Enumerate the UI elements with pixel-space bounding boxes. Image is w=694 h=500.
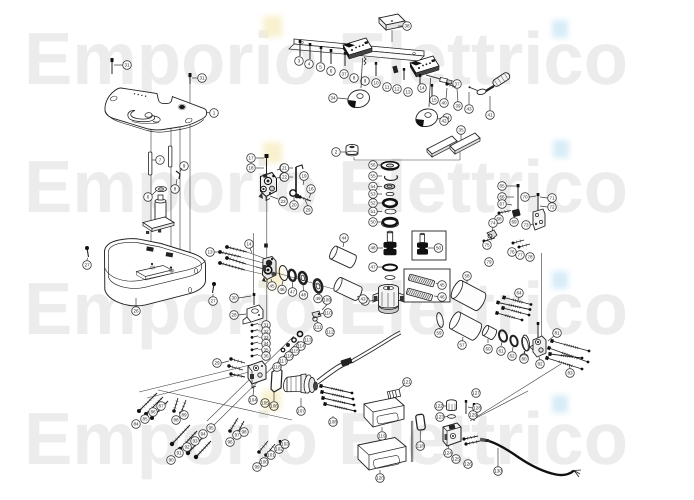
svg-text:80: 80 <box>521 357 527 362</box>
svg-text:103: 103 <box>281 442 289 447</box>
svg-text:96: 96 <box>227 440 233 445</box>
svg-text:74: 74 <box>490 221 496 226</box>
svg-text:71: 71 <box>549 196 555 201</box>
svg-text:55: 55 <box>370 174 376 179</box>
svg-text:76: 76 <box>509 250 515 255</box>
svg-text:86: 86 <box>150 410 156 415</box>
svg-text:125: 125 <box>452 457 460 462</box>
svg-text:61: 61 <box>498 349 504 354</box>
svg-text:75: 75 <box>484 243 490 248</box>
svg-text:22: 22 <box>282 175 288 180</box>
svg-text:128: 128 <box>473 406 481 411</box>
svg-text:45: 45 <box>269 284 275 289</box>
svg-text:9: 9 <box>364 79 367 84</box>
svg-text:79: 79 <box>486 260 492 265</box>
svg-text:48: 48 <box>370 246 376 251</box>
svg-text:106: 106 <box>270 404 278 409</box>
svg-text:130: 130 <box>494 469 502 474</box>
svg-text:95: 95 <box>208 426 214 431</box>
svg-text:38: 38 <box>404 24 410 29</box>
svg-text:34: 34 <box>330 96 336 101</box>
svg-text:45: 45 <box>439 283 445 288</box>
svg-text:108: 108 <box>329 420 337 425</box>
svg-text:58: 58 <box>464 274 470 279</box>
svg-text:62: 62 <box>509 354 515 359</box>
svg-text:5: 5 <box>319 65 322 70</box>
svg-text:17: 17 <box>248 156 254 161</box>
svg-text:73: 73 <box>523 223 529 228</box>
svg-text:123: 123 <box>436 415 444 420</box>
svg-text:2: 2 <box>335 150 338 155</box>
svg-text:7: 7 <box>159 158 162 163</box>
svg-text:87: 87 <box>158 404 164 409</box>
svg-text:49: 49 <box>315 296 321 301</box>
svg-text:50: 50 <box>436 246 442 251</box>
svg-text:39: 39 <box>455 104 461 109</box>
svg-text:120: 120 <box>376 476 384 481</box>
svg-text:6: 6 <box>330 69 333 74</box>
svg-text:28: 28 <box>231 313 237 318</box>
svg-text:85: 85 <box>142 417 148 422</box>
svg-text:23: 23 <box>280 199 286 204</box>
svg-text:111: 111 <box>315 325 322 330</box>
svg-text:4: 4 <box>308 62 311 67</box>
svg-text:27: 27 <box>210 299 216 304</box>
svg-text:109: 109 <box>323 298 331 303</box>
svg-text:117: 117 <box>279 359 287 364</box>
svg-text:44: 44 <box>341 236 347 241</box>
svg-text:40: 40 <box>441 101 447 106</box>
svg-text:6: 6 <box>147 195 150 200</box>
svg-text:118: 118 <box>273 365 281 370</box>
svg-text:36: 36 <box>263 354 269 359</box>
svg-text:127: 127 <box>472 391 480 396</box>
svg-text:99: 99 <box>254 465 260 470</box>
svg-text:82: 82 <box>537 362 543 367</box>
svg-text:122: 122 <box>435 404 443 409</box>
svg-text:57: 57 <box>459 343 465 348</box>
svg-text:66: 66 <box>499 195 505 200</box>
svg-text:52: 52 <box>370 201 376 206</box>
svg-text:13: 13 <box>207 250 213 255</box>
svg-text:98: 98 <box>241 430 247 435</box>
svg-text:8: 8 <box>174 187 177 192</box>
svg-text:68: 68 <box>496 217 502 222</box>
svg-text:51: 51 <box>370 209 376 214</box>
svg-text:129: 129 <box>469 413 477 418</box>
svg-text:56: 56 <box>370 163 376 168</box>
svg-text:119: 119 <box>378 434 386 439</box>
svg-text:92: 92 <box>184 445 190 450</box>
svg-text:16: 16 <box>308 187 314 192</box>
svg-text:93: 93 <box>192 439 198 444</box>
svg-text:60: 60 <box>485 347 491 352</box>
svg-text:43: 43 <box>360 297 366 302</box>
svg-text:15: 15 <box>431 98 437 103</box>
svg-text:90: 90 <box>168 458 174 463</box>
svg-text:65: 65 <box>499 184 505 189</box>
svg-text:67: 67 <box>499 202 505 207</box>
svg-text:31: 31 <box>124 63 130 68</box>
svg-text:46: 46 <box>439 295 445 300</box>
svg-text:31: 31 <box>199 76 205 81</box>
svg-text:47: 47 <box>370 265 376 270</box>
svg-text:84: 84 <box>133 422 139 427</box>
svg-text:48: 48 <box>301 293 307 298</box>
svg-text:104: 104 <box>249 398 257 403</box>
svg-text:107: 107 <box>297 409 305 414</box>
svg-text:47: 47 <box>290 290 296 295</box>
svg-text:29: 29 <box>305 208 311 213</box>
svg-text:81: 81 <box>554 331 560 336</box>
svg-text:64: 64 <box>516 291 522 296</box>
svg-text:46: 46 <box>279 287 285 292</box>
svg-text:91: 91 <box>176 451 182 456</box>
svg-text:78: 78 <box>527 255 533 260</box>
svg-text:37: 37 <box>341 72 347 77</box>
svg-text:9: 9 <box>183 164 186 169</box>
svg-text:35: 35 <box>458 128 464 133</box>
svg-text:70: 70 <box>522 195 528 200</box>
svg-text:12: 12 <box>394 87 400 92</box>
svg-text:72: 72 <box>549 205 555 210</box>
svg-text:11: 11 <box>385 85 390 90</box>
svg-text:18: 18 <box>248 166 254 171</box>
svg-text:100: 100 <box>260 460 268 465</box>
svg-text:20: 20 <box>291 203 297 208</box>
svg-text:3: 3 <box>298 59 301 64</box>
svg-text:30: 30 <box>231 296 237 301</box>
svg-text:37: 37 <box>454 82 460 87</box>
svg-text:126: 126 <box>464 462 472 467</box>
svg-text:88: 88 <box>173 418 179 423</box>
svg-text:124: 124 <box>444 451 452 456</box>
svg-text:110: 110 <box>324 311 332 316</box>
svg-text:89: 89 <box>181 413 187 418</box>
svg-text:43: 43 <box>466 107 472 112</box>
svg-text:105: 105 <box>261 401 269 406</box>
svg-text:69: 69 <box>511 220 517 225</box>
svg-text:26: 26 <box>133 309 139 314</box>
svg-text:27: 27 <box>84 263 90 268</box>
svg-text:14: 14 <box>419 86 425 91</box>
svg-text:1: 1 <box>213 111 216 116</box>
svg-text:50: 50 <box>370 220 376 225</box>
svg-text:97: 97 <box>234 433 240 438</box>
svg-text:101: 101 <box>267 453 275 458</box>
svg-text:21: 21 <box>282 166 288 171</box>
svg-text:83: 83 <box>567 371 573 376</box>
svg-text:14: 14 <box>246 242 252 247</box>
svg-text:121: 121 <box>403 380 411 385</box>
svg-text:8: 8 <box>353 76 356 81</box>
svg-text:19: 19 <box>301 174 307 179</box>
svg-text:42: 42 <box>441 119 447 124</box>
svg-text:94: 94 <box>200 432 206 437</box>
svg-text:Emporio Elettrico: Emporio Elettrico <box>24 17 628 100</box>
svg-text:41: 41 <box>487 113 493 118</box>
svg-text:118: 118 <box>417 444 425 449</box>
svg-text:10: 10 <box>373 81 379 86</box>
svg-text:59: 59 <box>436 331 442 336</box>
svg-text:29: 29 <box>214 361 220 366</box>
svg-text:112: 112 <box>326 330 334 335</box>
svg-text:53: 53 <box>370 192 376 197</box>
svg-text:54: 54 <box>370 184 376 189</box>
svg-text:13: 13 <box>405 90 411 95</box>
svg-text:77: 77 <box>517 253 523 258</box>
svg-text:113: 113 <box>304 338 312 343</box>
